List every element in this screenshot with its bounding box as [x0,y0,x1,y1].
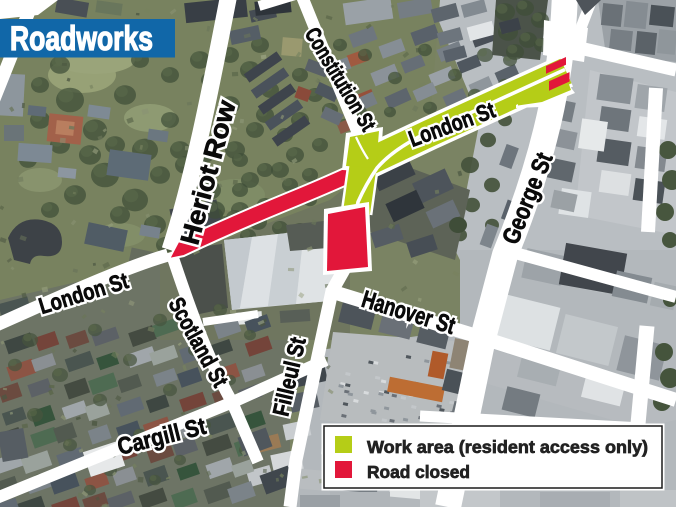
svg-text:Work area (resident access onl: Work area (resident access only) [367,437,648,457]
svg-text:Road closed: Road closed [367,462,470,482]
svg-text:Roadworks: Roadworks [10,20,153,58]
